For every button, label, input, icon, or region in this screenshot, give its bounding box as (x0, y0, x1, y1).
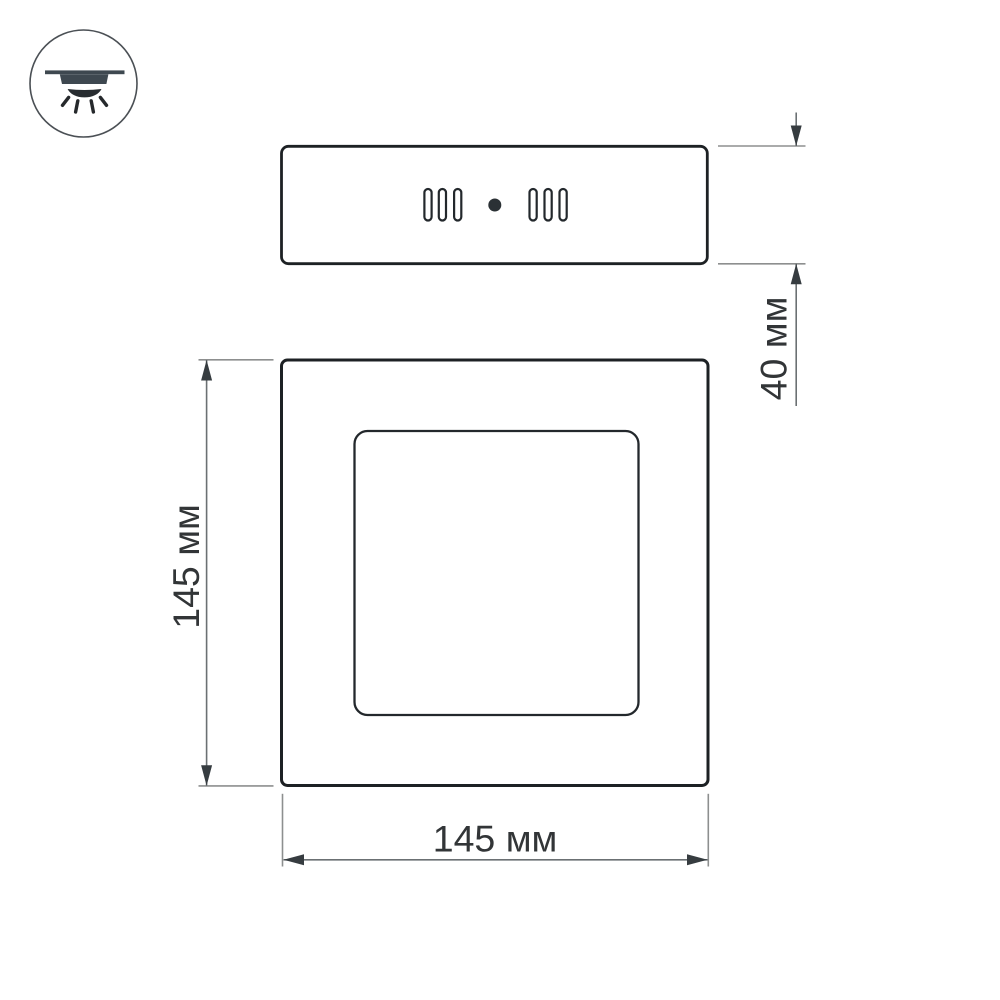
svg-text:145 мм: 145 мм (433, 818, 558, 860)
svg-text:40 мм: 40 мм (753, 297, 795, 401)
svg-text:145 мм: 145 мм (165, 504, 207, 629)
